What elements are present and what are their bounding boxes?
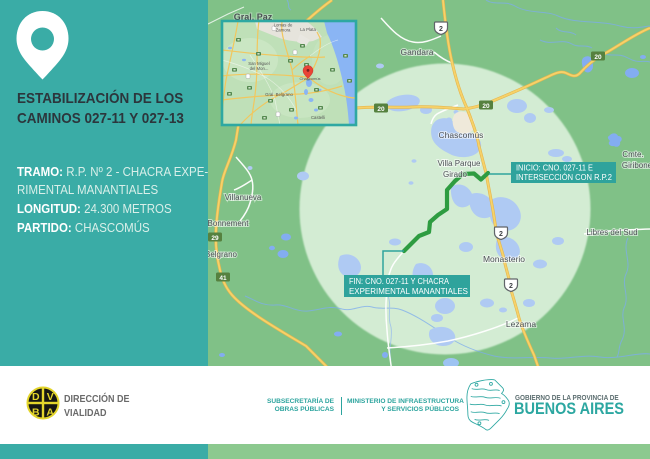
svg-text:A: A xyxy=(46,407,54,419)
svg-text:Belgrano: Belgrano xyxy=(208,250,238,259)
svg-text:Gral. Belgrano: Gral. Belgrano xyxy=(265,92,293,97)
svg-text:2: 2 xyxy=(439,26,443,33)
svg-text:FIN: CNO. 027-11 Y CHACRA: FIN: CNO. 027-11 Y CHACRA xyxy=(349,276,449,286)
svg-text:2: 2 xyxy=(509,283,513,290)
svg-text:Chascomús: Chascomús xyxy=(299,76,320,81)
svg-text:Lezama: Lezama xyxy=(506,319,537,329)
svg-text:B: B xyxy=(32,407,40,419)
svg-text:INICIO: CNO. 027-11 E: INICIO: CNO. 027-11 E xyxy=(516,163,593,173)
svg-text:Gandara: Gandara xyxy=(400,47,433,57)
svg-text:Girado: Girado xyxy=(443,170,468,179)
svg-text:Castelli: Castelli xyxy=(311,115,325,120)
svg-text:29: 29 xyxy=(211,235,219,242)
svg-text:INTERSECCIÓN CON R.P.2: INTERSECCIÓN CON R.P.2 xyxy=(516,172,612,182)
svg-text:D: D xyxy=(32,391,40,403)
svg-text:Villa Parque: Villa Parque xyxy=(438,159,482,168)
svg-text:20: 20 xyxy=(482,103,490,110)
svg-text:41: 41 xyxy=(219,275,227,282)
svg-text:Zamora: Zamora xyxy=(276,28,291,33)
svg-text:Monasterio: Monasterio xyxy=(483,254,525,264)
svg-text:Villanueva: Villanueva xyxy=(225,193,262,202)
svg-text:20: 20 xyxy=(377,106,385,113)
svg-text:Giribone: Giribone xyxy=(622,161,650,170)
svg-text:Chascomús: Chascomús xyxy=(439,130,484,140)
svg-text:2: 2 xyxy=(499,231,503,238)
svg-text:Bonnement: Bonnement xyxy=(208,219,249,228)
svg-text:Cmte.: Cmte. xyxy=(622,150,643,159)
svg-text:V: V xyxy=(47,391,54,403)
svg-text:Libres del Sud: Libres del Sud xyxy=(586,228,637,237)
svg-text:La Plata: La Plata xyxy=(300,27,316,32)
svg-text:del Mon...: del Mon... xyxy=(250,66,269,71)
svg-text:20: 20 xyxy=(594,54,602,61)
svg-text:EXPERIMENTAL MANANTIALES: EXPERIMENTAL MANANTIALES xyxy=(349,286,468,296)
